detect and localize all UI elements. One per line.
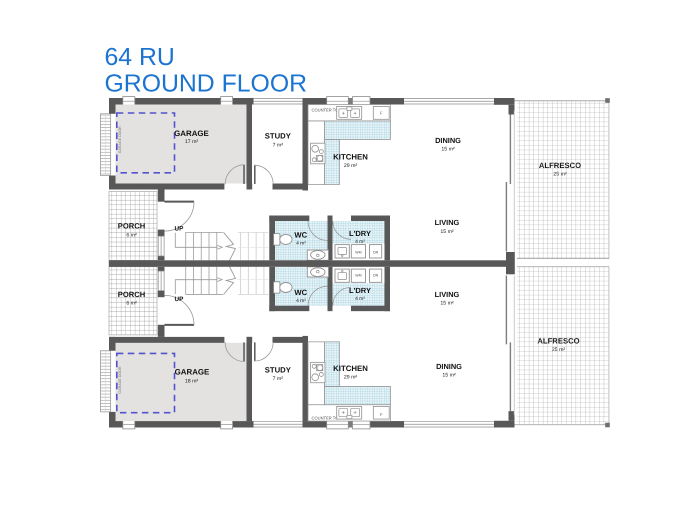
svg-text:LIVING: LIVING <box>435 290 460 299</box>
svg-text:PORCH: PORCH <box>118 290 145 299</box>
svg-text:L'DRY: L'DRY <box>349 229 371 238</box>
svg-text:DINING: DINING <box>435 136 461 145</box>
svg-text:GARAGE: GARAGE <box>174 129 209 138</box>
svg-text:7 m²: 7 m² <box>273 142 284 148</box>
svg-text:64 RU: 64 RU <box>105 44 175 71</box>
svg-text:7 m²: 7 m² <box>273 376 284 382</box>
svg-text:UP: UP <box>175 225 185 232</box>
svg-text:DR: DR <box>373 251 379 255</box>
svg-text:STUDY: STUDY <box>265 132 291 141</box>
svg-text:WC: WC <box>294 231 307 240</box>
svg-text:LIVING: LIVING <box>435 218 460 227</box>
svg-text:DINING: DINING <box>436 362 462 371</box>
svg-text:GARAGE DOOR: GARAGE DOOR <box>118 126 122 154</box>
svg-text:6 m²: 6 m² <box>126 233 137 239</box>
svg-text:KITCHEN: KITCHEN <box>333 364 368 373</box>
svg-text:18 m²: 18 m² <box>185 378 199 384</box>
svg-text:15 m²: 15 m² <box>440 229 454 235</box>
svg-text:15 m²: 15 m² <box>442 372 456 378</box>
svg-text:WM: WM <box>355 251 361 255</box>
svg-text:6 m²: 6 m² <box>126 301 137 307</box>
svg-text:WM: WM <box>355 274 361 278</box>
svg-text:29 m²: 29 m² <box>344 163 358 169</box>
svg-text:WC: WC <box>294 288 307 297</box>
svg-text:L'DRY: L'DRY <box>349 286 371 295</box>
svg-text:PORCH: PORCH <box>118 221 145 230</box>
svg-text:STUDY: STUDY <box>265 365 291 374</box>
svg-text:GROUND FLOOR: GROUND FLOOR <box>105 71 308 98</box>
svg-text:4 m²: 4 m² <box>355 296 365 302</box>
svg-text:GARAGE: GARAGE <box>175 368 210 377</box>
svg-text:4 m²: 4 m² <box>296 298 306 304</box>
svg-text:4 m²: 4 m² <box>296 240 306 246</box>
svg-text:15 m²: 15 m² <box>441 146 455 152</box>
svg-text:GARAGE DOOR: GARAGE DOOR <box>118 366 122 394</box>
svg-text:4 m²: 4 m² <box>355 239 365 245</box>
svg-text:17 m²: 17 m² <box>185 139 199 145</box>
svg-text:29 m²: 29 m² <box>344 375 358 381</box>
svg-text:DR: DR <box>373 274 379 278</box>
svg-text:15 m²: 15 m² <box>440 301 454 307</box>
svg-text:KITCHEN: KITCHEN <box>333 152 368 161</box>
svg-text:UP: UP <box>175 296 185 303</box>
